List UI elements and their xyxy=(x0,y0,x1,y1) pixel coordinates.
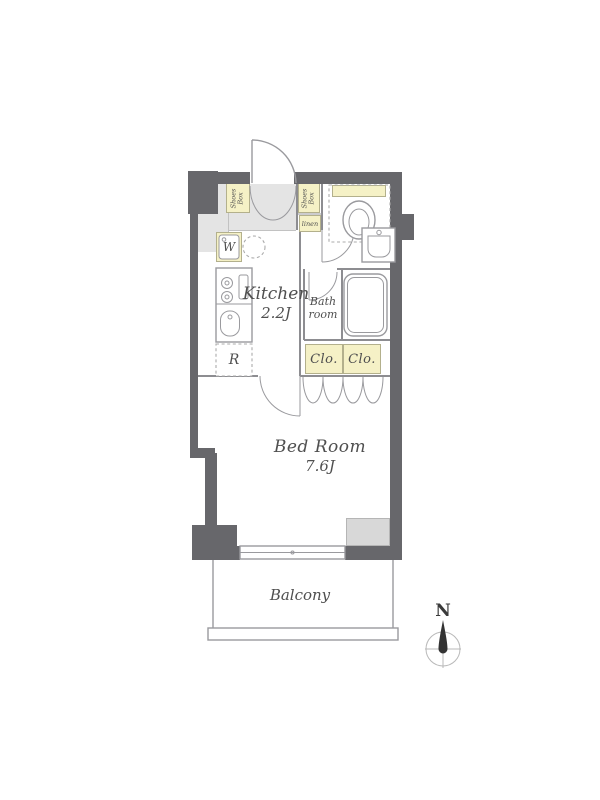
bathtub-fixture xyxy=(344,274,387,336)
closet-door-arcs xyxy=(303,377,383,403)
floorplan-page: ShoesBox ShoesBox linen Clo. Clo. xyxy=(0,0,600,800)
bathroom-label: Bath room xyxy=(305,295,341,321)
plan-linework xyxy=(0,0,600,800)
entrance-door-swing xyxy=(250,140,296,220)
bedroom-door-swing xyxy=(260,376,300,416)
compass-needle-icon xyxy=(439,620,448,654)
washer-label: W xyxy=(216,232,242,262)
refrigerator-label: R xyxy=(216,344,252,376)
bedroom-label: Bed Room 7.6J xyxy=(230,437,410,475)
north-label: N xyxy=(429,601,457,621)
washbasin-fixture xyxy=(362,228,395,262)
compass xyxy=(425,620,461,668)
balcony-label: Balcony xyxy=(240,586,360,604)
window xyxy=(240,546,345,559)
